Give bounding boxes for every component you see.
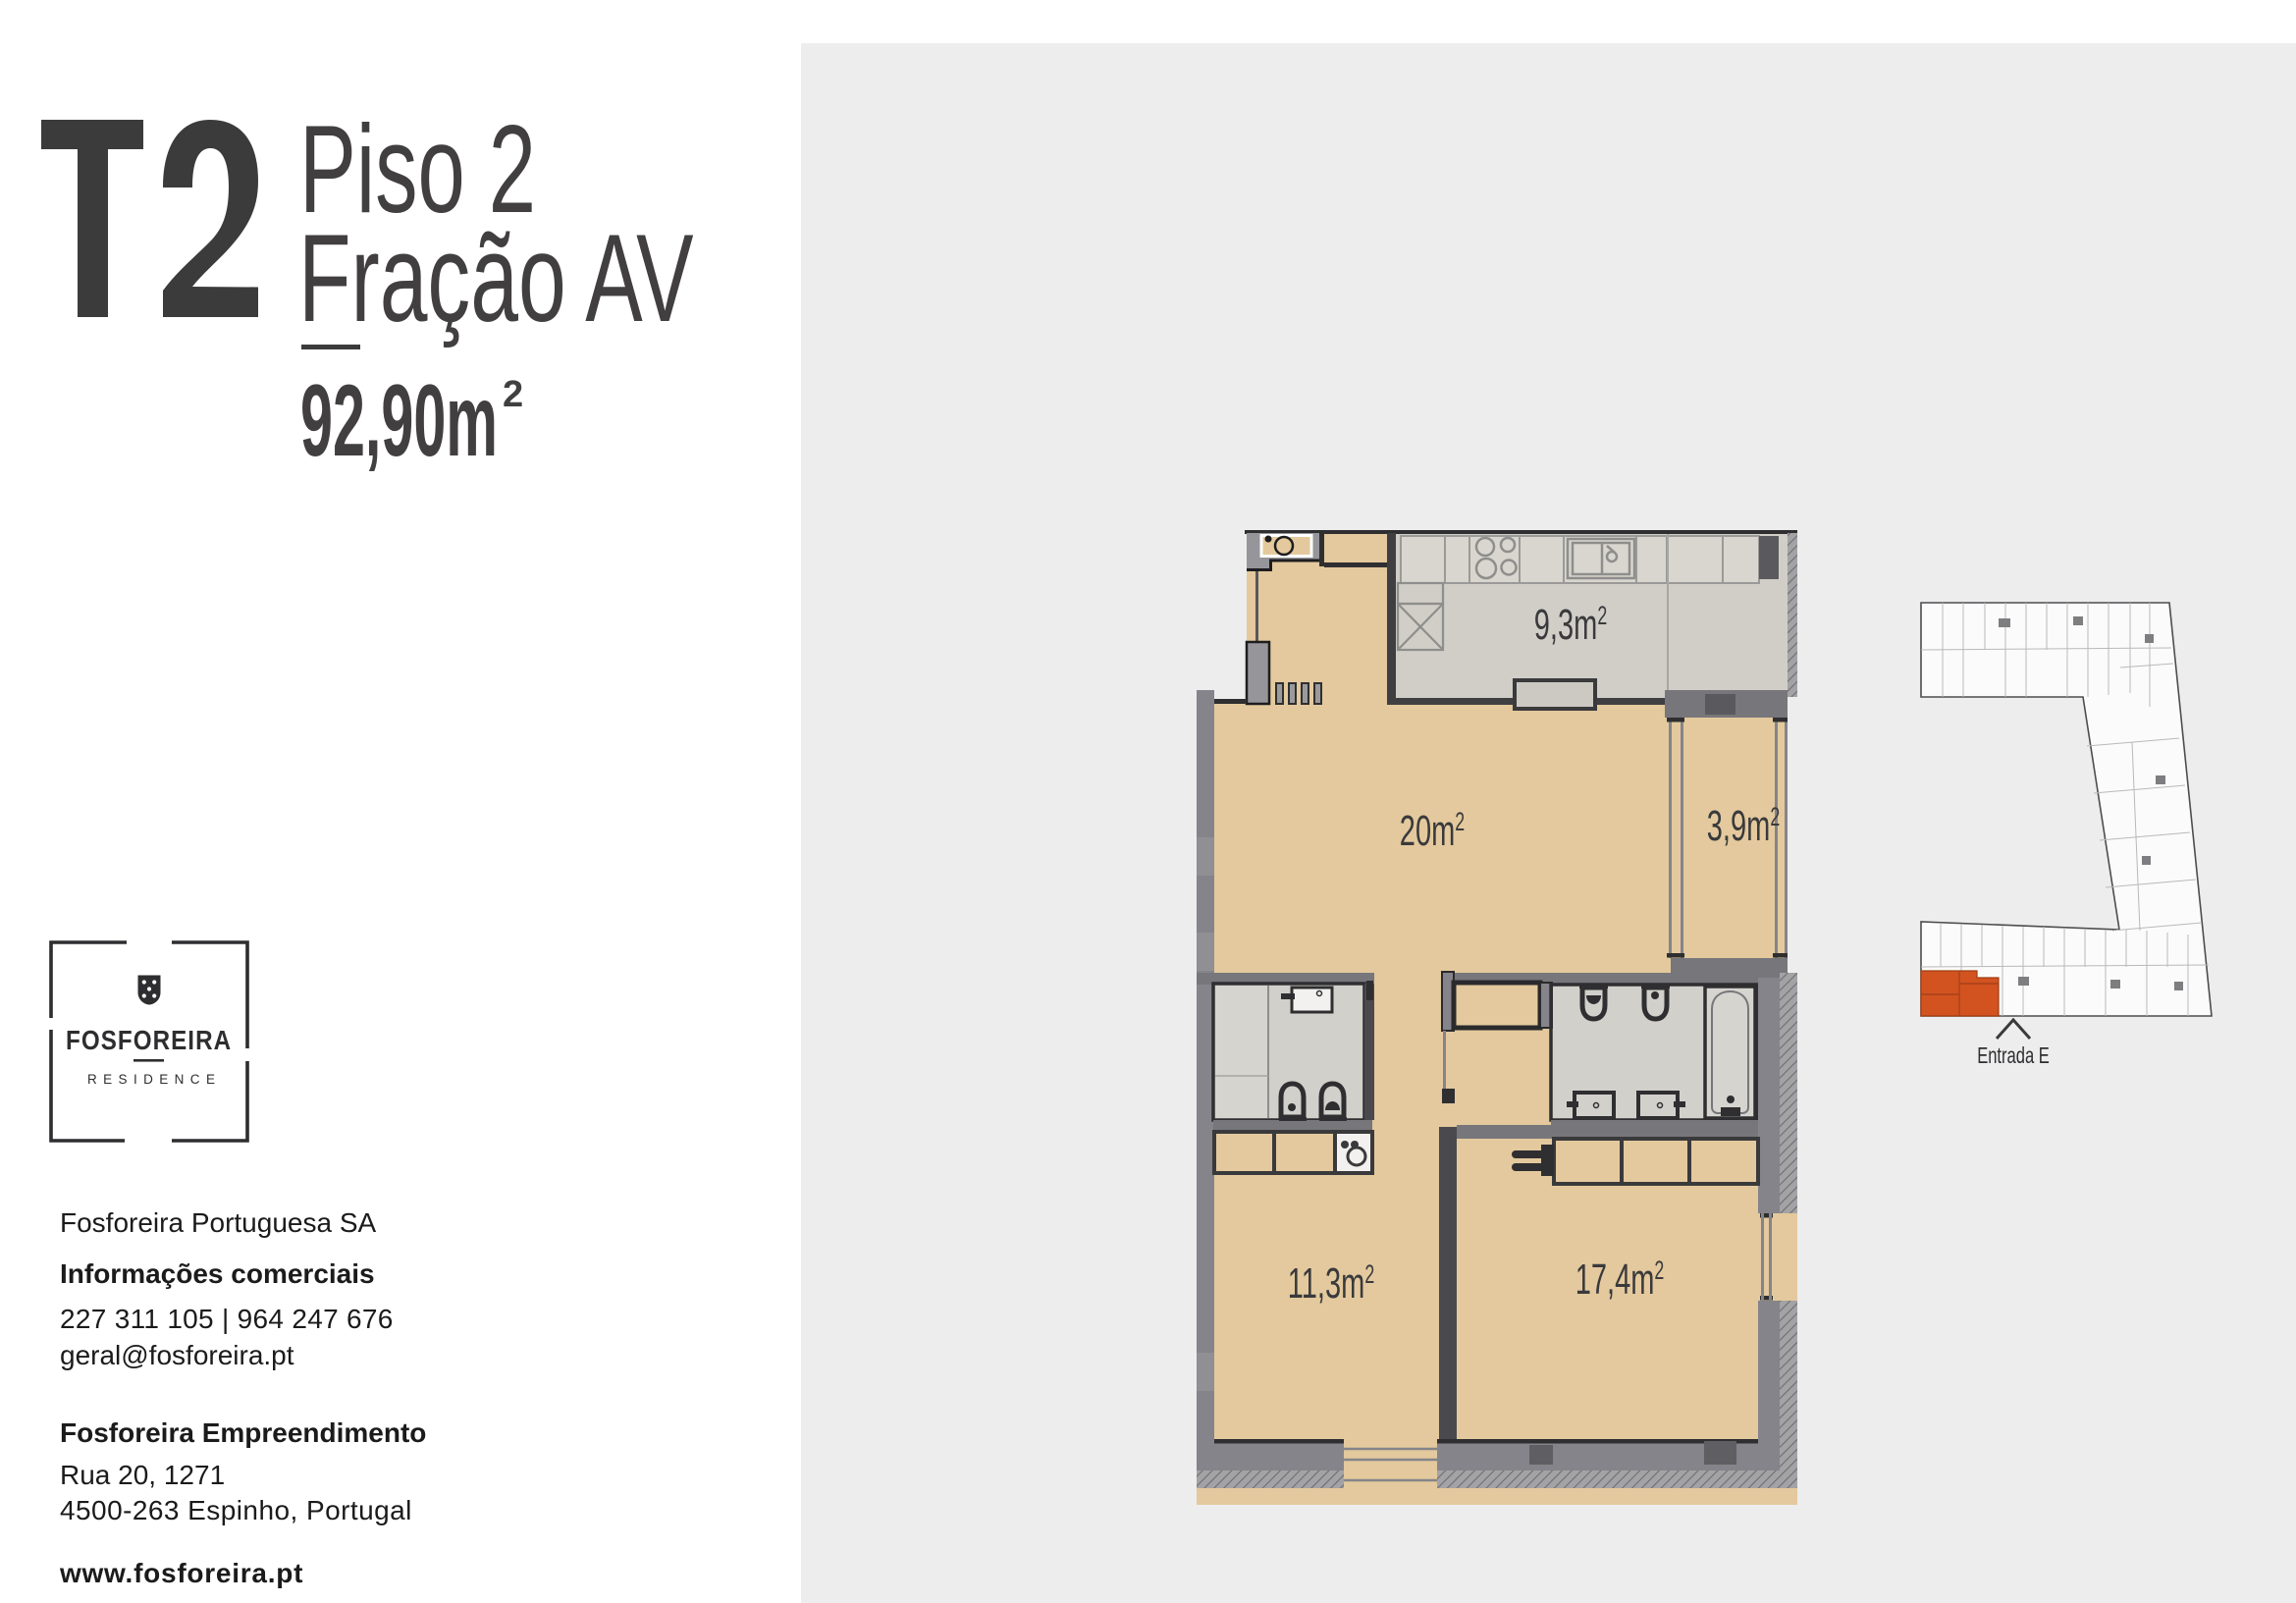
svg-text:Fosforeira Empreendimento: Fosforeira Empreendimento xyxy=(60,1417,426,1448)
svg-text:Rua 20, 1271: Rua 20, 1271 xyxy=(60,1460,225,1490)
svg-text:9,3m2: 9,3m2 xyxy=(1534,600,1607,649)
svg-text:2: 2 xyxy=(503,374,523,415)
svg-text:www.fosforeira.pt: www.fosforeira.pt xyxy=(59,1558,303,1588)
svg-text:Fosforeira Portuguesa SA: Fosforeira Portuguesa SA xyxy=(60,1207,376,1238)
svg-text:4500-263 Espinho, Portugal: 4500-263 Espinho, Portugal xyxy=(60,1495,412,1525)
svg-text:227 311 105 | 964 247 676: 227 311 105 | 964 247 676 xyxy=(60,1304,394,1334)
svg-text:11,3m2: 11,3m2 xyxy=(1288,1258,1374,1308)
svg-text:Fração AV: Fração AV xyxy=(298,209,694,348)
svg-text:geral@fosforeira.pt: geral@fosforeira.pt xyxy=(60,1340,294,1370)
svg-text:20m2: 20m2 xyxy=(1400,806,1465,855)
svg-text:RESIDENCE: RESIDENCE xyxy=(87,1072,221,1087)
svg-text:3,9m2: 3,9m2 xyxy=(1707,801,1780,850)
svg-text:Informações comerciais: Informações comerciais xyxy=(60,1258,375,1289)
svg-text:92,90m: 92,90m xyxy=(300,362,498,477)
svg-text:Entrada E: Entrada E xyxy=(1977,1043,2050,1068)
svg-text:FOSFOREIRA: FOSFOREIRA xyxy=(66,1027,232,1056)
svg-text:17,4m2: 17,4m2 xyxy=(1575,1255,1665,1304)
